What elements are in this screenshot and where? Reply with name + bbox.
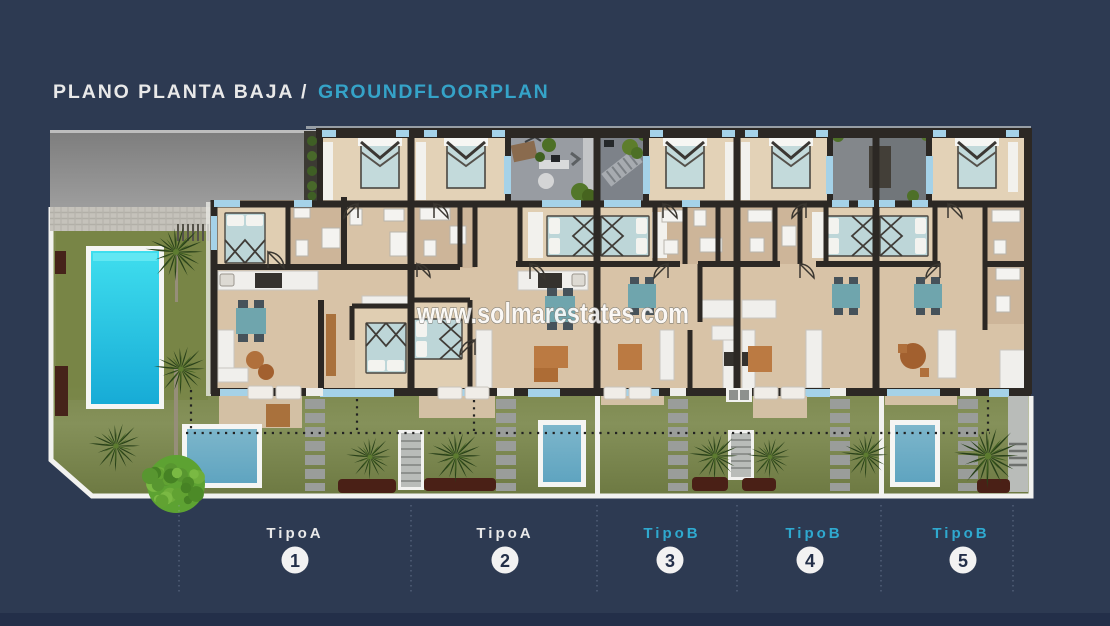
svg-text:1: 1	[290, 551, 300, 571]
svg-text:4: 4	[805, 551, 815, 571]
svg-text:TipoB: TipoB	[643, 525, 700, 542]
svg-text:TipoA: TipoA	[266, 525, 323, 542]
svg-text:TipoA: TipoA	[476, 525, 533, 542]
svg-text:TipoB: TipoB	[932, 525, 989, 542]
svg-text:5: 5	[958, 551, 968, 571]
svg-text:www.solmarestates.com: www.solmarestates.com	[416, 298, 689, 330]
svg-text:3: 3	[665, 551, 675, 571]
svg-text:TipoB: TipoB	[785, 525, 842, 542]
svg-text:PLANO PLANTA BAJA /: PLANO PLANTA BAJA /	[53, 81, 308, 103]
svg-text:2: 2	[500, 551, 510, 571]
svg-text:GROUNDFLOORPLAN: GROUNDFLOORPLAN	[318, 81, 549, 103]
